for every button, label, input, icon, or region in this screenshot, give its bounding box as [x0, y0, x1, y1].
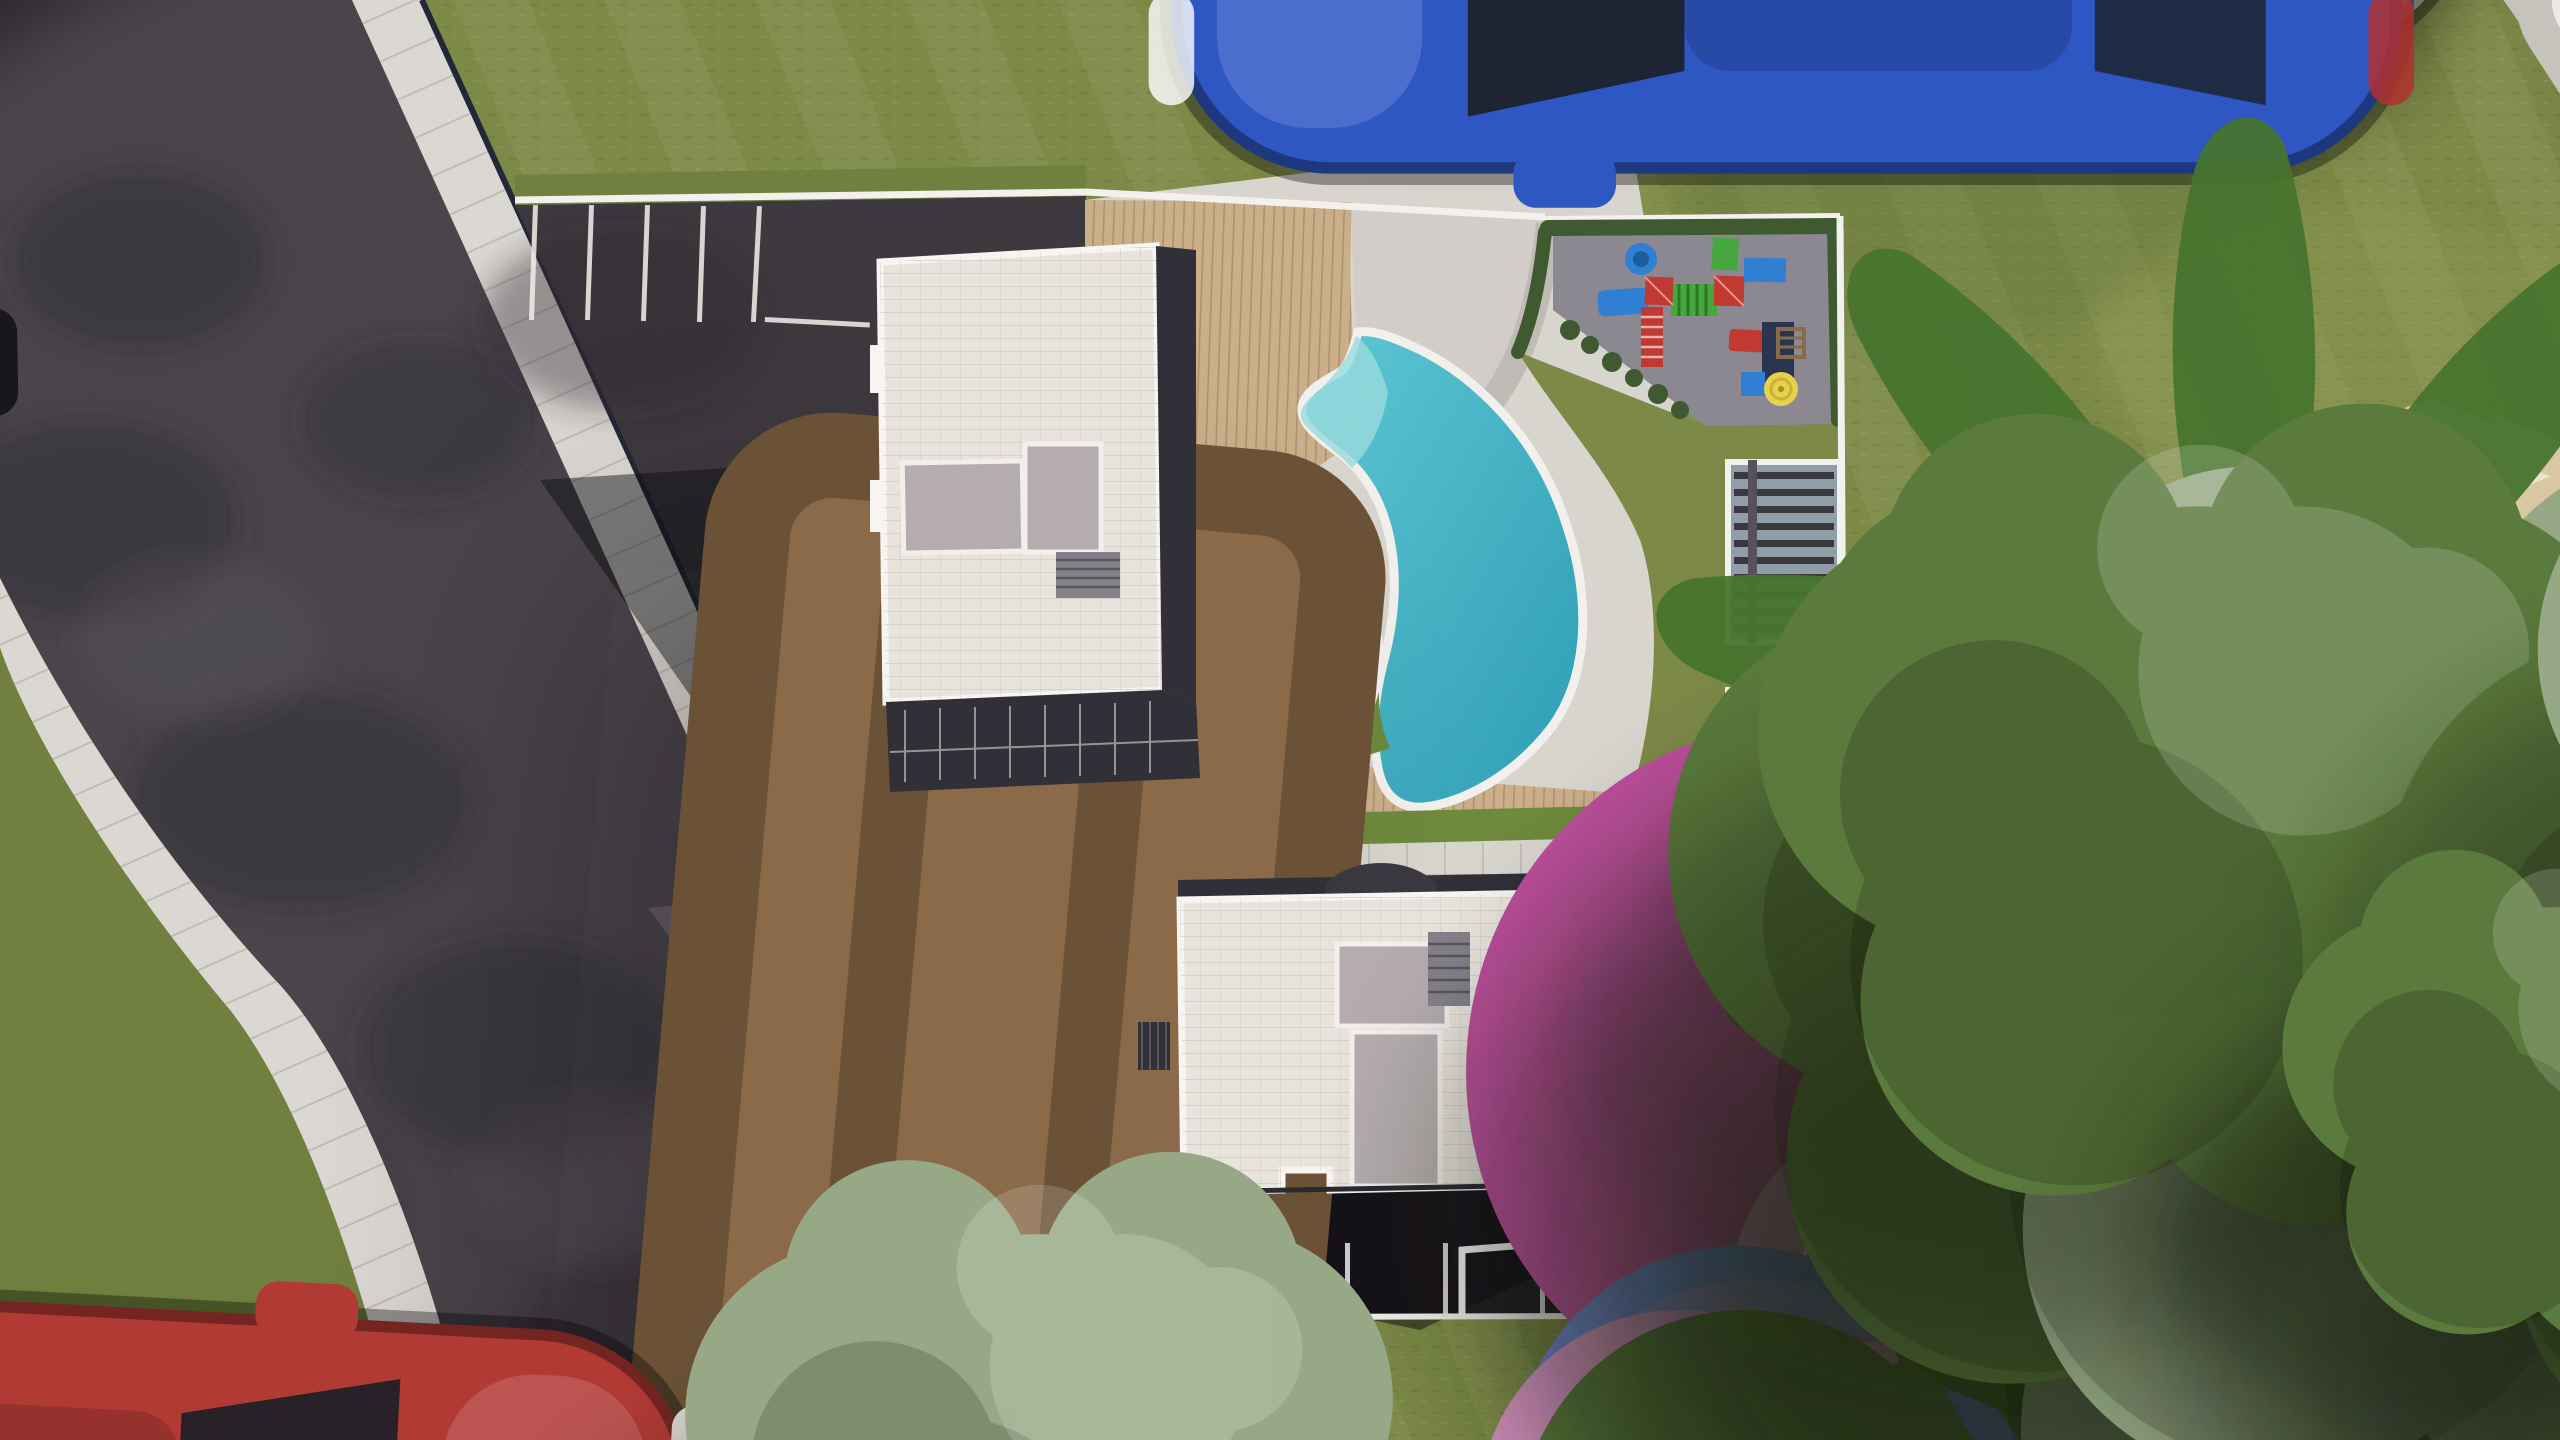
- building1-balcony-notch-1: [870, 345, 884, 393]
- parking-stripe: [1443, 1243, 1448, 1318]
- building2-roof-core-2: [1352, 1032, 1440, 1186]
- building1-balcony-notch-2: [870, 480, 884, 532]
- building1-roof-core-2: [1025, 444, 1101, 552]
- building1-east-facade: [1156, 246, 1196, 700]
- playground-hedge-top: [1548, 226, 1836, 228]
- building-1: [870, 246, 1200, 792]
- building1-roof-core-1: [902, 461, 1024, 553]
- spiral-tube-core: [1633, 251, 1649, 267]
- climbing-tower: [1711, 237, 1739, 270]
- blue-cube: [1741, 372, 1765, 396]
- blue-deck-box: [1744, 258, 1786, 283]
- aerial-site-render: [0, 0, 2560, 1440]
- site-plan-svg: [0, 0, 2560, 1440]
- carousel-hub: [1778, 386, 1784, 392]
